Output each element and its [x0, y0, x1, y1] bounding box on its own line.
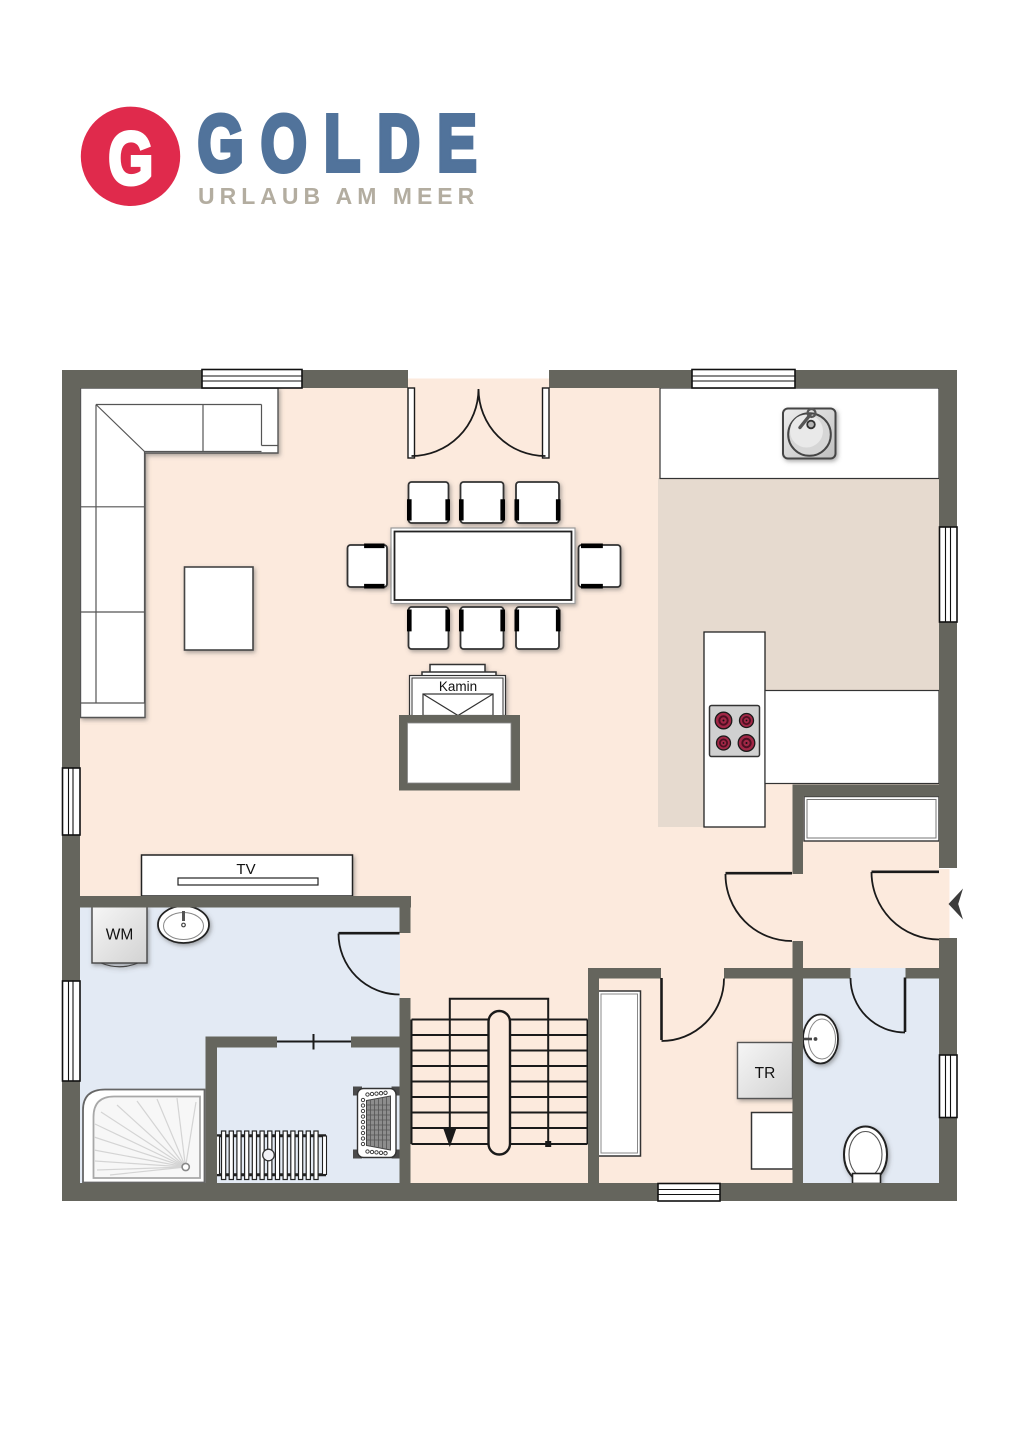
svg-text:GOLDE: GOLDE: [198, 98, 494, 188]
svg-text:Kamin: Kamin: [439, 679, 477, 694]
svg-text:TV: TV: [236, 861, 255, 878]
svg-text:G: G: [108, 118, 153, 201]
svg-text:URLAUB AM MEER: URLAUB AM MEER: [198, 183, 479, 209]
svg-text:WM: WM: [106, 927, 134, 944]
svg-text:TR: TR: [755, 1065, 776, 1082]
